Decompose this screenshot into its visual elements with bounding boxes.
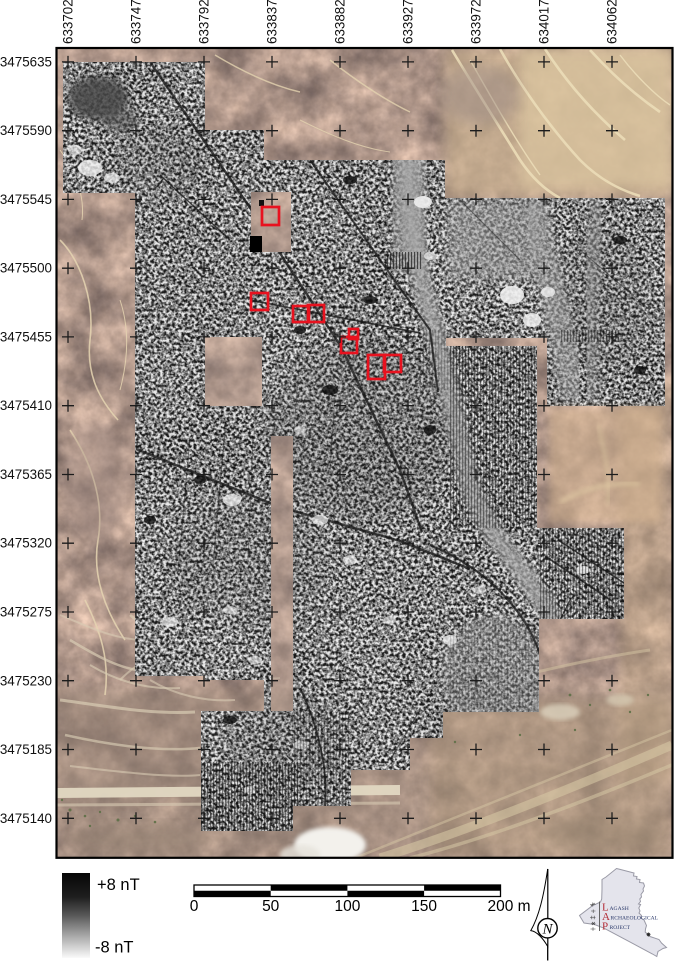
svg-text:633882: 633882: [333, 0, 348, 44]
svg-text:RCHAEOLOGICAL: RCHAEOLOGICAL: [611, 916, 659, 922]
svg-text:633702: 633702: [61, 0, 76, 44]
svg-text:3475635: 3475635: [0, 54, 52, 69]
svg-text:150: 150: [411, 898, 437, 915]
svg-text:3475365: 3475365: [0, 467, 52, 482]
svg-text:N: N: [541, 922, 553, 938]
svg-text:3475140: 3475140: [0, 811, 52, 826]
svg-text:3475275: 3475275: [0, 605, 52, 620]
svg-text:633927: 633927: [401, 0, 416, 44]
svg-text:633972: 633972: [469, 0, 484, 44]
svg-text:AGASH: AGASH: [610, 906, 629, 912]
svg-text:3475455: 3475455: [0, 330, 52, 345]
svg-text:3475320: 3475320: [0, 536, 52, 551]
svg-text:50: 50: [262, 898, 280, 915]
svg-text:100: 100: [334, 898, 360, 915]
svg-text:633837: 633837: [265, 0, 280, 44]
svg-text:633792: 633792: [197, 0, 212, 44]
svg-text:3475230: 3475230: [0, 673, 52, 688]
svg-text:+8 nT: +8 nT: [97, 876, 140, 894]
svg-text:634017: 634017: [537, 0, 552, 44]
svg-text:3475500: 3475500: [0, 261, 52, 276]
svg-text:200 m: 200 m: [487, 898, 530, 915]
svg-text:633747: 633747: [129, 0, 144, 44]
svg-text:ROJECT: ROJECT: [610, 925, 631, 931]
svg-text:3475185: 3475185: [0, 742, 52, 757]
svg-text:634062: 634062: [605, 0, 620, 44]
svg-text:3475590: 3475590: [0, 123, 52, 138]
svg-text:3475545: 3475545: [0, 192, 52, 207]
svg-text:P: P: [602, 921, 608, 933]
svg-text:3475410: 3475410: [0, 398, 52, 413]
svg-text:-8 nT: -8 nT: [95, 939, 134, 957]
svg-text:0: 0: [190, 898, 199, 915]
